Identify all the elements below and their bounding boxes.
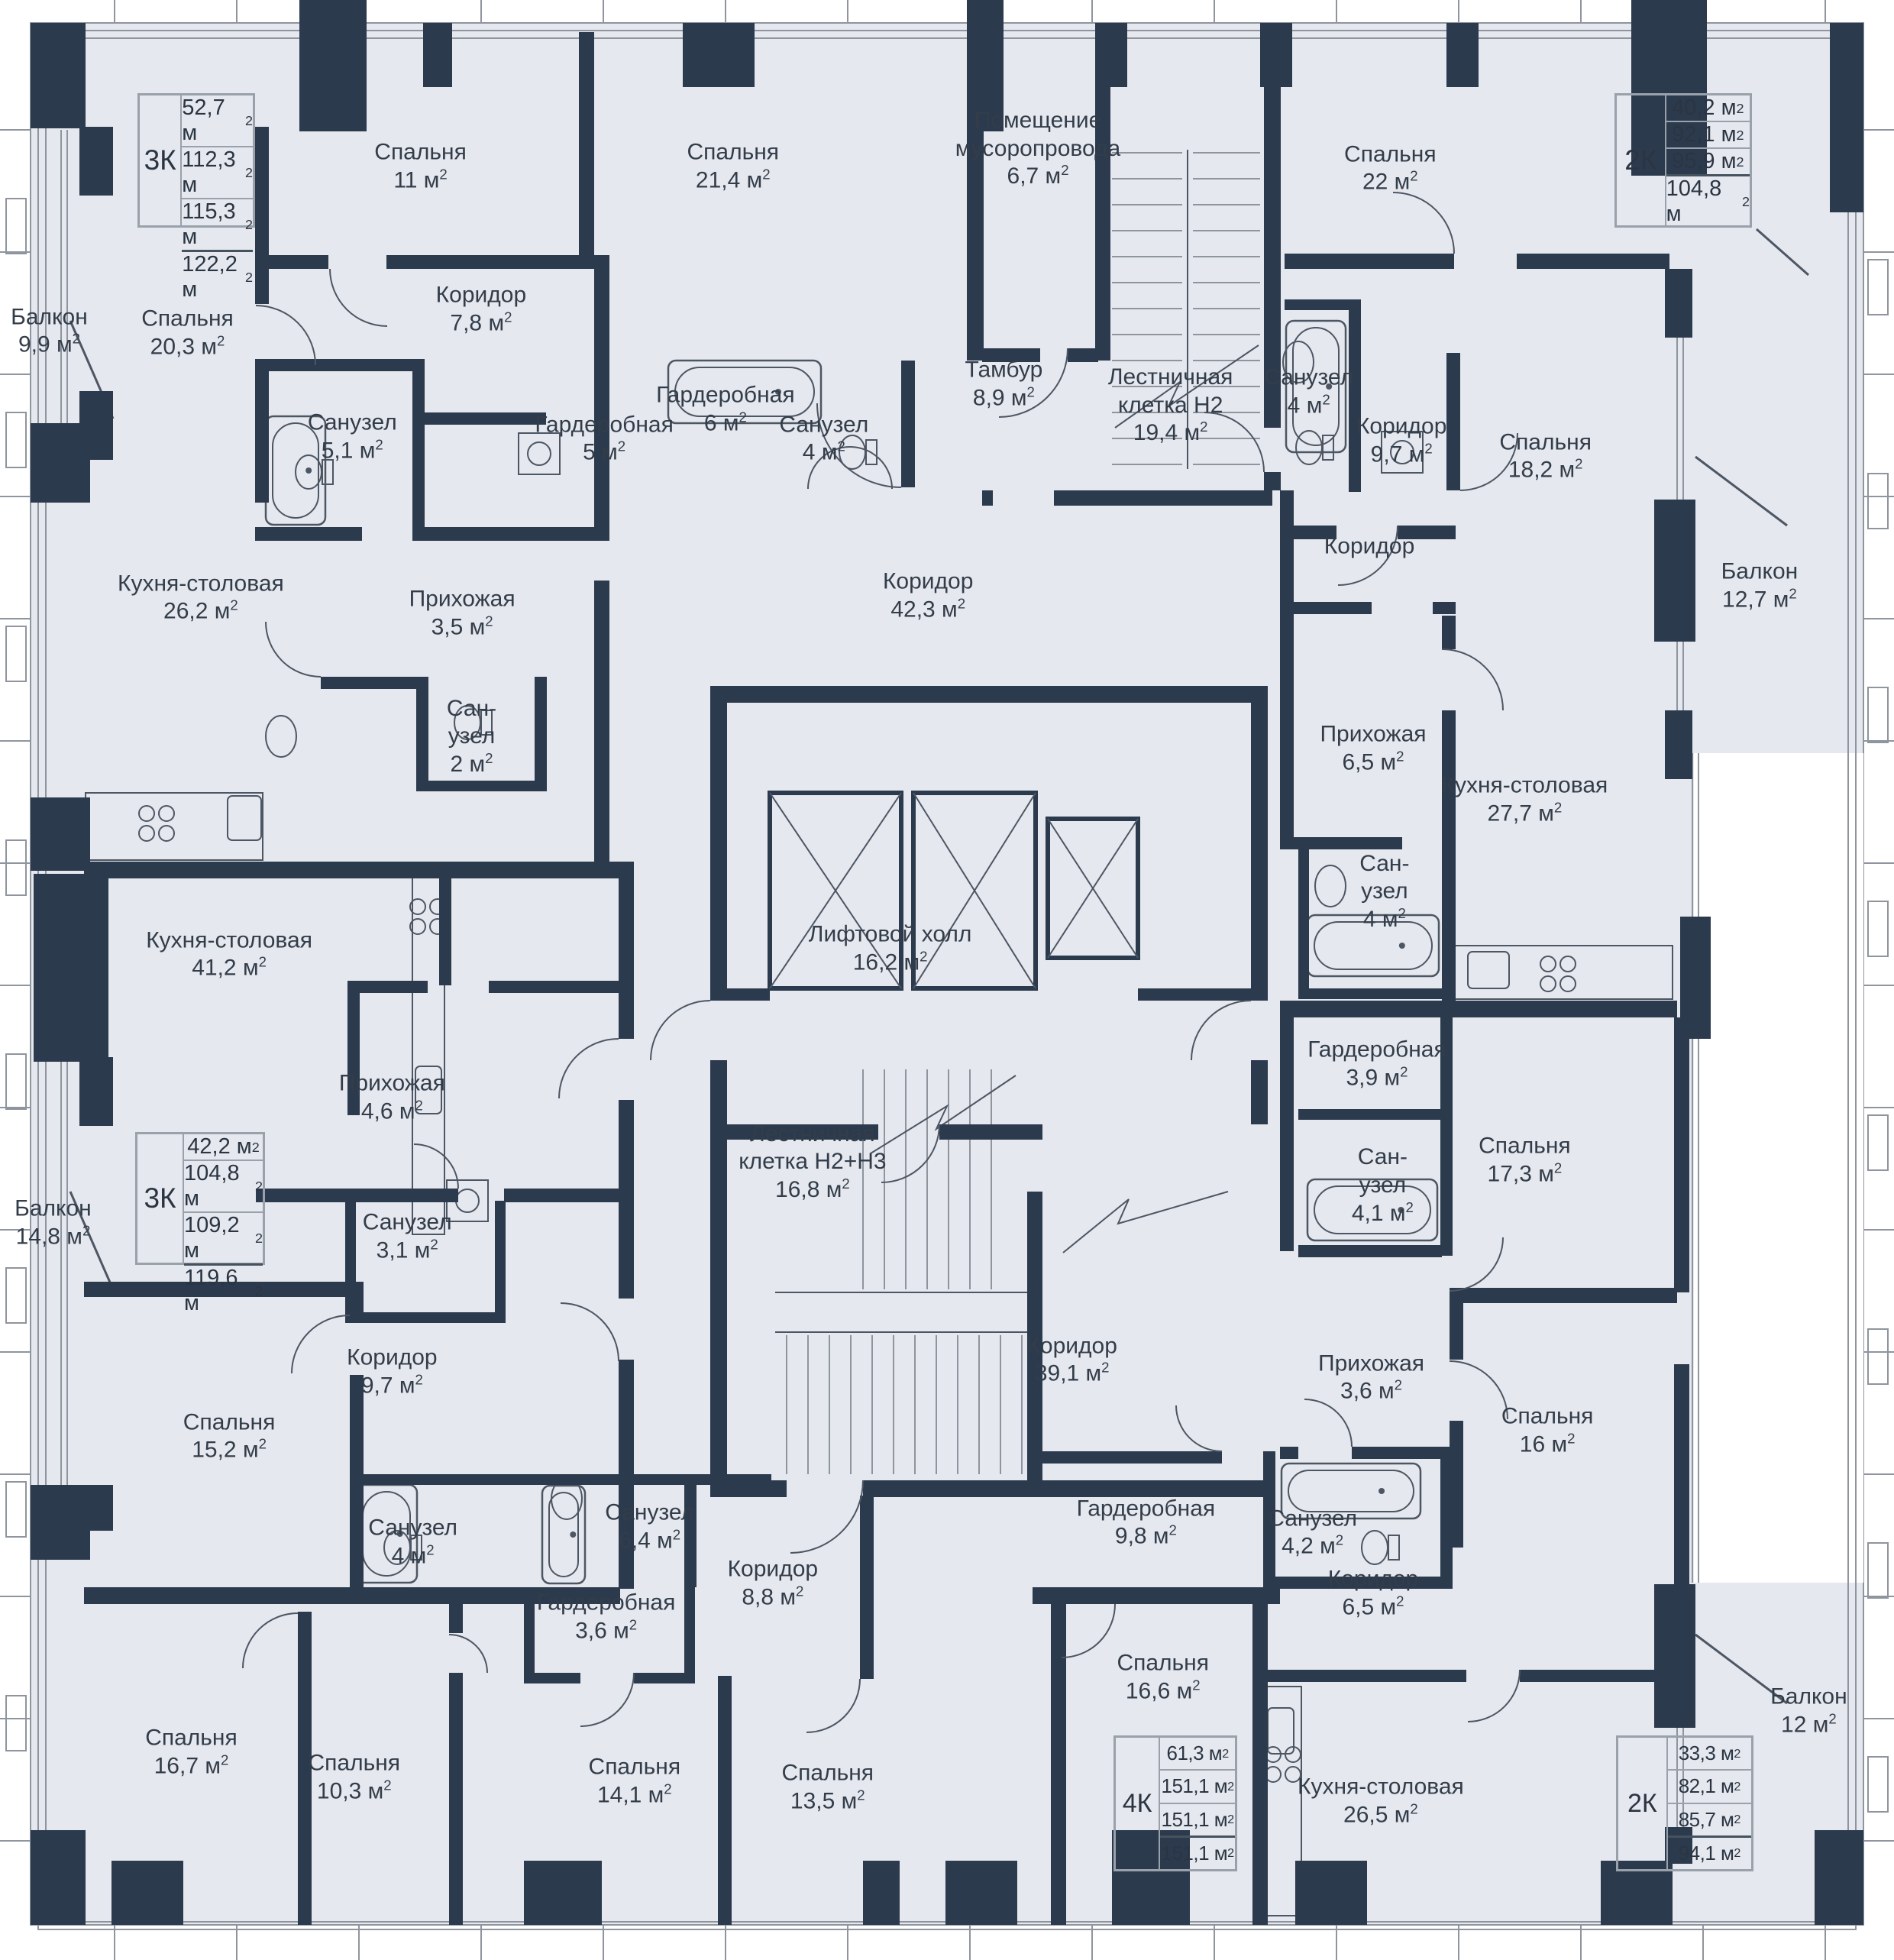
window-icon (1868, 1329, 1888, 1384)
window-icon (1868, 901, 1888, 956)
window-icon (6, 1696, 26, 1751)
floor-plan: 3К52,7 м2112,3 м2115,3 м2122,2 м22К40,2 … (0, 0, 1894, 1960)
window-icon (6, 626, 26, 681)
window-icon (1868, 1115, 1888, 1170)
window-icon (1868, 1757, 1888, 1812)
floorplan-svg (0, 0, 1894, 1960)
window-icon (6, 1268, 26, 1323)
window-icon (6, 1054, 26, 1109)
window-icon (1868, 260, 1888, 315)
window-icon (6, 199, 26, 254)
window-icon (6, 412, 26, 467)
window-icon (6, 840, 26, 895)
window-icon (1868, 1543, 1888, 1598)
window-icon (1868, 687, 1888, 742)
window-icon (1868, 474, 1888, 529)
window-icon (6, 1482, 26, 1537)
